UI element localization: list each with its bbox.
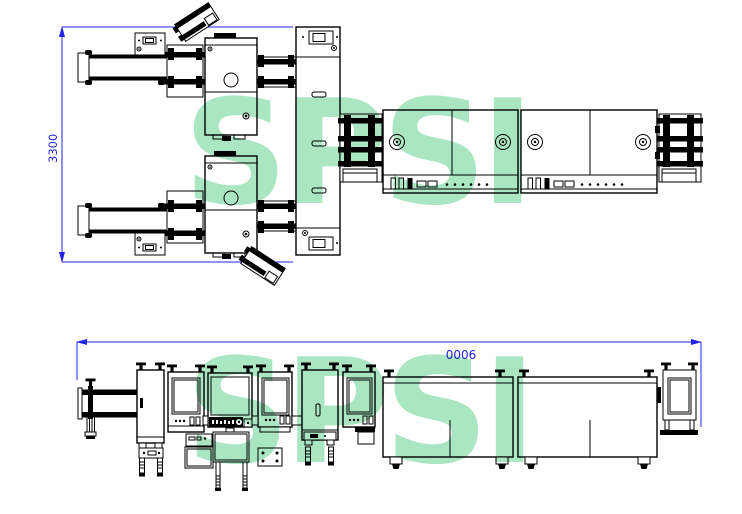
watermark-bottom: SPSI [185, 328, 530, 497]
dimension-arrow-up [59, 26, 65, 37]
assembly-line-drawing: 3300 [0, 0, 742, 514]
infeed-conveyor-front [78, 379, 140, 440]
rail-connector [655, 152, 660, 159]
height-dimension-label: 3300 [46, 134, 60, 163]
rail-connector [655, 126, 660, 133]
outfeed-stand-front [660, 363, 698, 436]
oven-module-2-front [518, 370, 661, 470]
outfeed-rack-plan [657, 114, 703, 182]
dimension-arrow-right [691, 339, 702, 345]
cad-drawing: 3300 [0, 0, 742, 514]
tilted-labeller-bottom [237, 245, 285, 286]
dimension-arrow-down [59, 252, 65, 263]
dimension-arrow-left [76, 339, 87, 345]
oven-module-2-plan [521, 110, 657, 193]
cabinet-a-front [136, 363, 165, 477]
watermark-top: SPSI [183, 69, 528, 238]
